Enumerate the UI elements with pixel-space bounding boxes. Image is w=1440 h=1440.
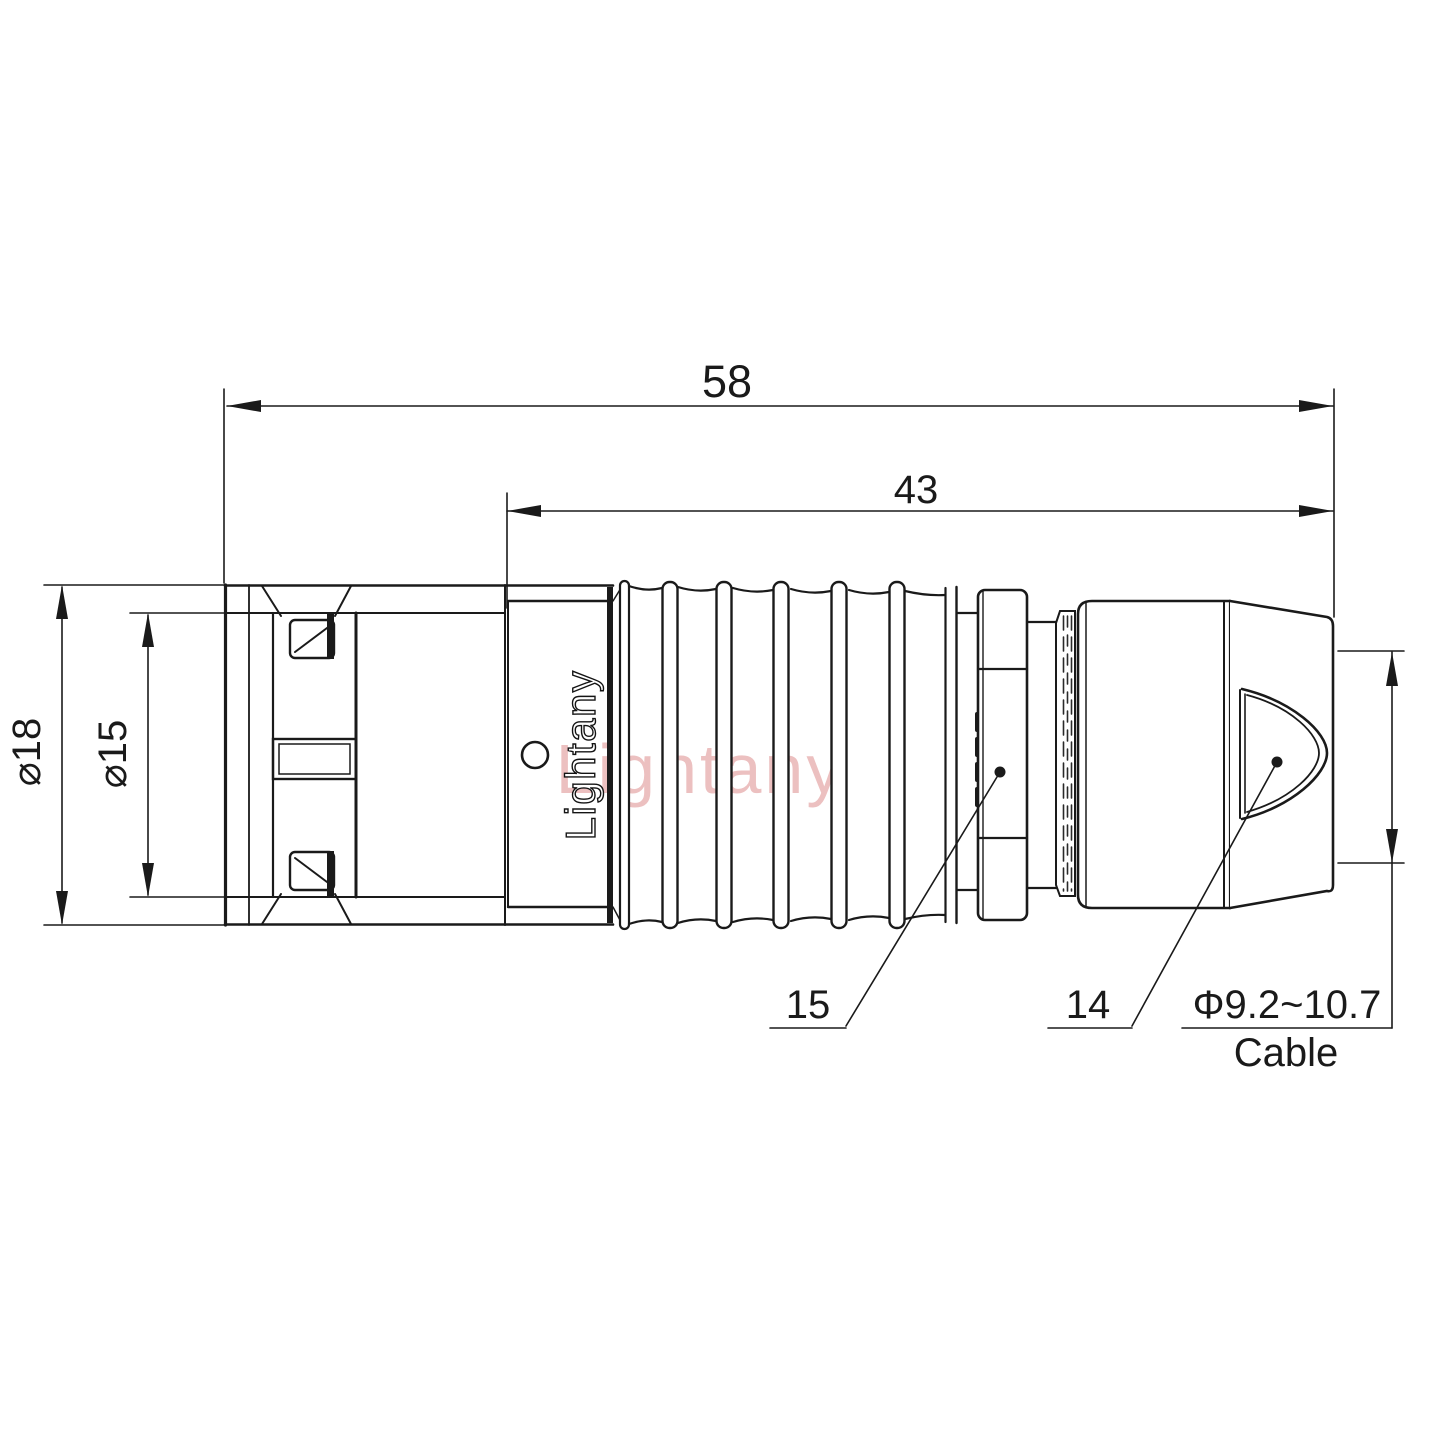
release-hole [522, 742, 548, 768]
serrated-washer [1027, 611, 1075, 896]
dim-rear-length-value: 43 [894, 468, 939, 512]
cable-diameter-value: Φ9.2~10.7 [1193, 983, 1382, 1027]
rear-housing [1078, 601, 1230, 908]
key-slot [273, 739, 356, 779]
rear-cone [1230, 601, 1333, 908]
connector-body [225, 581, 1333, 929]
engineering-drawing-page: Lightany [0, 0, 1440, 1440]
latch-spring-top [262, 586, 351, 659]
callout-part-15-label: 15 [786, 983, 831, 1027]
connector-dimension-drawing: Lightany [0, 0, 1440, 1440]
cable-label: Cable [1234, 1031, 1339, 1075]
coupling-nut [957, 590, 1027, 920]
brand-logo-text: Lightany [557, 670, 604, 841]
latch-spring-bottom [262, 851, 351, 924]
dim-inner-diameter [130, 613, 225, 897]
dim-inner-diameter-value: ⌀15 [91, 720, 135, 789]
dim-overall-length-value: 58 [702, 356, 752, 407]
ribbed-sleeve [620, 581, 957, 929]
dim-outer-diameter-value: ⌀18 [5, 718, 49, 787]
callout-part-14-label: 14 [1066, 983, 1111, 1027]
